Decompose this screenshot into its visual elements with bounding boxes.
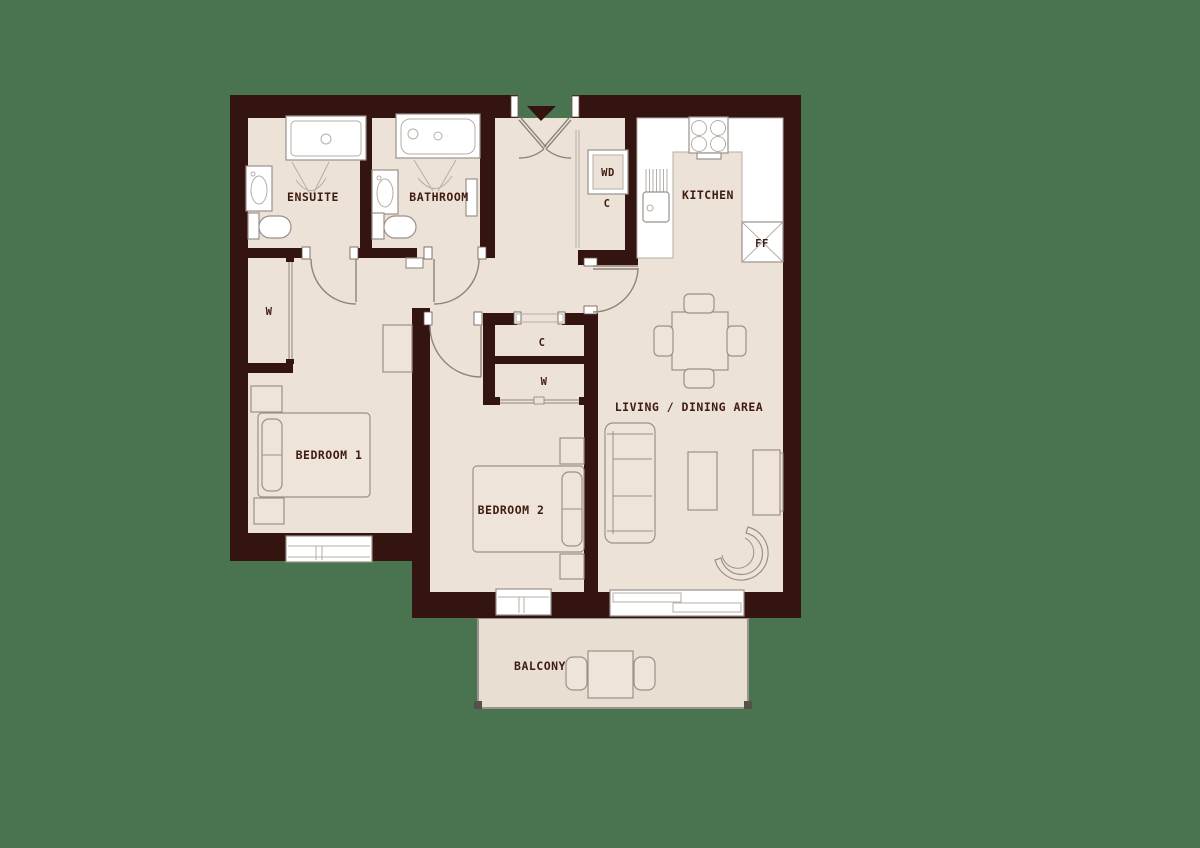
wall-bedroom-divider <box>412 308 430 618</box>
bedroom2-door-jamb <box>474 312 482 325</box>
ensuite-toilet-cistern <box>248 213 259 239</box>
feature-label-hall-cupboard: C <box>604 198 611 210</box>
bathroom-toilet-bowl <box>384 216 416 238</box>
wall-closet-divider <box>495 356 584 364</box>
bedroom1-window <box>286 536 372 562</box>
floor-plan: ENSUITE BATHROOM KITCHEN WD C FF W C W B… <box>0 0 1200 848</box>
dining-chair-east <box>727 326 746 356</box>
bedroom1-nightstand-top <box>251 386 282 412</box>
dining-table <box>672 312 728 370</box>
coffee-table <box>688 452 717 510</box>
bedroom1-nightstand-bottom <box>254 498 284 524</box>
bedroom2-nightstand-bottom <box>560 554 584 579</box>
entrance-jamb-left <box>511 96 518 117</box>
entrance-jamb-right <box>572 96 579 117</box>
sink-drainer <box>646 169 667 192</box>
feature-label-wardrobe-1: W <box>266 306 273 318</box>
slide-cap <box>286 359 294 364</box>
dining-chair-north <box>684 294 714 313</box>
slide-cap <box>579 397 584 405</box>
wall-left <box>230 95 248 561</box>
ensuite-door-jamb <box>350 247 358 259</box>
hob-handle <box>697 153 721 159</box>
dining-chair-west <box>654 326 673 356</box>
balcony-chair-right <box>634 657 655 690</box>
feature-label-wardrobe-2: W <box>541 376 548 388</box>
balcony-corner-right <box>744 701 752 709</box>
room-label-balcony: BALCONY <box>514 659 566 673</box>
room-label-bedroom2: BEDROOM 2 <box>478 503 545 517</box>
bathroom-toilet-cistern <box>372 213 384 239</box>
bathroom-door-jamb <box>424 247 432 259</box>
room-label-kitchen: KITCHEN <box>682 188 734 202</box>
bedroom1-desk <box>383 325 412 372</box>
feature-label-washer-dryer: WD <box>601 167 615 179</box>
room-label-living-dining: LIVING / DINING AREA <box>615 400 763 414</box>
living-door-jamb <box>584 306 597 314</box>
shower-tray <box>286 116 366 160</box>
wall-closet-left <box>483 313 495 405</box>
wall-right <box>783 95 801 618</box>
living-door-jamb <box>584 258 597 266</box>
ensuite-door-jamb <box>302 247 310 259</box>
tv-unit <box>753 450 780 515</box>
balcony-table <box>588 651 633 698</box>
wall-wardrobe1-bottom <box>230 363 293 373</box>
dining-chair-south <box>684 369 714 388</box>
room-label-bedroom1: BEDROOM 1 <box>296 448 363 462</box>
wall-top-right <box>572 95 801 118</box>
bathroom-door-jamb <box>478 247 486 259</box>
feature-label-fridge-freezer: FF <box>755 238 769 250</box>
bedroom2-nightstand-top <box>560 438 584 464</box>
ensuite-toilet-bowl <box>259 216 291 238</box>
wall-living-bedroom2-divider <box>584 313 598 592</box>
slide-cap <box>286 257 294 262</box>
bedroom2-door-jamb <box>424 312 432 325</box>
slide-handle <box>534 397 544 404</box>
balcony-chair-left <box>566 657 587 690</box>
slide-cap <box>495 397 500 405</box>
wall-bathroom-bottom <box>357 248 417 258</box>
balcony-corner-left <box>474 701 482 709</box>
room-label-ensuite: ENSUITE <box>287 190 339 204</box>
wall-hall-left <box>480 118 495 258</box>
room-label-bathroom: BATHROOM <box>409 190 468 204</box>
hob <box>689 117 728 153</box>
radiator <box>406 258 423 268</box>
feature-label-corridor-cupboard: C <box>539 337 546 349</box>
wall-closet-top-left <box>483 313 517 325</box>
wall-ensuite-bottom <box>230 248 303 258</box>
